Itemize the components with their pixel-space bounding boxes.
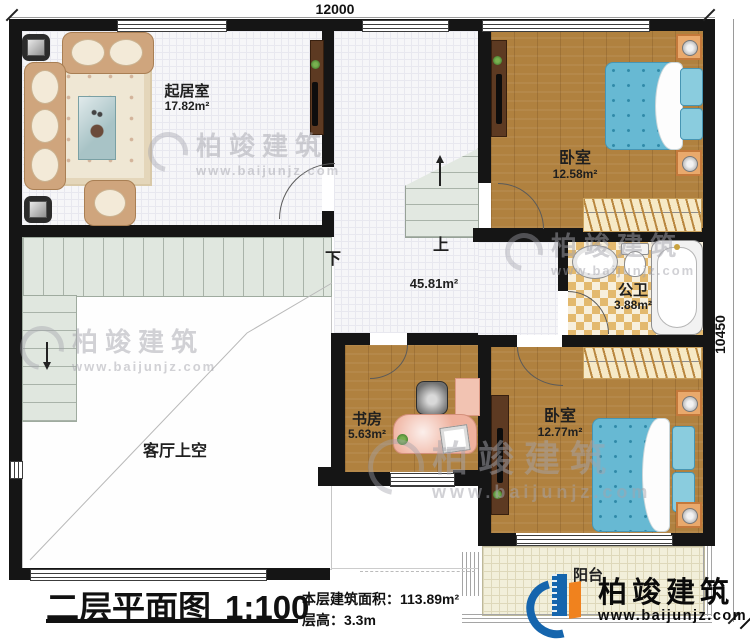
- label-void: 客厅上空: [130, 444, 220, 461]
- nightstand: [676, 502, 702, 528]
- tv-icon: [496, 74, 502, 124]
- floor-height-line: 层高：3.3m: [302, 610, 376, 630]
- brand-url: www.baijunjz.com: [598, 608, 747, 624]
- wall-bedroom2-bottom-b: [671, 533, 715, 546]
- sink: [572, 245, 618, 279]
- dimension-line-top: [9, 17, 715, 18]
- window-left-wall: [10, 461, 23, 479]
- plant-icon: [397, 434, 408, 445]
- dimension-height: 10450: [712, 292, 728, 354]
- plant-icon: [493, 56, 502, 65]
- outline-below-study: [331, 568, 478, 569]
- coffee-table: [78, 96, 116, 160]
- wall-bedroom2-left: [478, 347, 491, 546]
- dimension-width: 12000: [305, 1, 365, 17]
- dimension-line-right: [733, 19, 734, 622]
- wall-outer-right: [703, 19, 715, 545]
- title-underline: [46, 619, 298, 623]
- logo-building-orange: [569, 581, 581, 619]
- tv-icon: [312, 82, 318, 126]
- label-bathroom: 公卫 3.88m²: [606, 283, 660, 311]
- wall-bedroom2-top-a: [478, 335, 517, 347]
- sofa-cushion: [31, 148, 59, 182]
- stairs-up-arrow-head: [436, 155, 444, 163]
- label-bedroom1: 卧室 12.58m²: [543, 151, 607, 180]
- logo-building-blue: [552, 574, 567, 616]
- floor-plan: 柏竣建筑 www.baijunjz.com 柏竣建筑 www.baijunjz.…: [0, 0, 750, 643]
- brand-logo-icon: [526, 570, 592, 632]
- bed-pillow: [680, 108, 703, 140]
- speaker-icon: [22, 34, 50, 61]
- tv-icon: [497, 428, 503, 483]
- bed-blanket: [655, 62, 683, 150]
- wardrobe-bedroom2: [583, 347, 702, 379]
- bed-blanket: [642, 418, 670, 532]
- wall-bedroom2-top-b: [562, 335, 703, 347]
- window-bedroom1-top: [482, 20, 650, 32]
- label-study: 书房 5.63m²: [338, 412, 396, 440]
- side-cabinet: [455, 378, 480, 416]
- bed-pillow: [672, 426, 695, 470]
- brand-logo: 柏竣建筑 www.baijunjz.com: [526, 570, 747, 632]
- armchair: [84, 180, 136, 226]
- label-stairs-up: 上: [428, 238, 454, 255]
- balcony-sliding-door: [516, 535, 673, 546]
- sofa-cushion: [31, 70, 59, 104]
- wall-bedroom1-left: [478, 19, 491, 183]
- label-hall-area: 45.81m²: [402, 277, 466, 291]
- floor-area-line: 本层建筑面积：113.89m²: [302, 589, 459, 609]
- nightstand: [676, 150, 702, 176]
- wall-outer-left: [9, 19, 22, 580]
- dashed-edge: [360, 571, 475, 572]
- plant-icon: [311, 60, 320, 69]
- wall-study-left: [331, 333, 345, 486]
- sofa-cushion: [31, 109, 59, 143]
- window-void-bottom: [30, 569, 267, 581]
- stairs-down-arrow-line: [46, 342, 48, 364]
- wall-bathroom-left: [558, 242, 568, 291]
- stairs-down-arrow-head: [43, 362, 51, 370]
- plant-icon: [493, 490, 502, 499]
- wall-study-bottom-a: [331, 472, 390, 486]
- window-study-bottom: [390, 473, 455, 487]
- sofa-cushion: [94, 189, 126, 217]
- monitor-icon: [439, 424, 470, 454]
- bed-pillow: [680, 68, 703, 106]
- office-chair: [416, 381, 448, 415]
- wall-bedroom2-bottom-a: [478, 533, 516, 546]
- label-living-room: 起居室 17.82m²: [155, 84, 219, 112]
- brand-name: 柏竣建筑: [598, 579, 747, 608]
- sofa-cushion: [71, 39, 105, 66]
- label-bedroom2: 卧室 12.77m²: [528, 409, 592, 438]
- wall-living-bottom: [9, 225, 334, 237]
- window-hall-top: [362, 20, 449, 32]
- label-stairs-down: 下: [320, 252, 346, 269]
- nightstand: [676, 34, 702, 60]
- sofa-cushion: [109, 39, 143, 66]
- speaker-icon: [24, 196, 52, 223]
- sofa-top: [62, 32, 154, 74]
- wardrobe-bedroom1: [583, 198, 702, 232]
- nightstand: [676, 390, 702, 416]
- toilet-bowl: [624, 251, 646, 277]
- sofa-left: [24, 62, 66, 190]
- stairs-up-arrow-line: [439, 162, 441, 186]
- window-living-top: [117, 20, 227, 32]
- wall-study-top-b: [407, 333, 478, 345]
